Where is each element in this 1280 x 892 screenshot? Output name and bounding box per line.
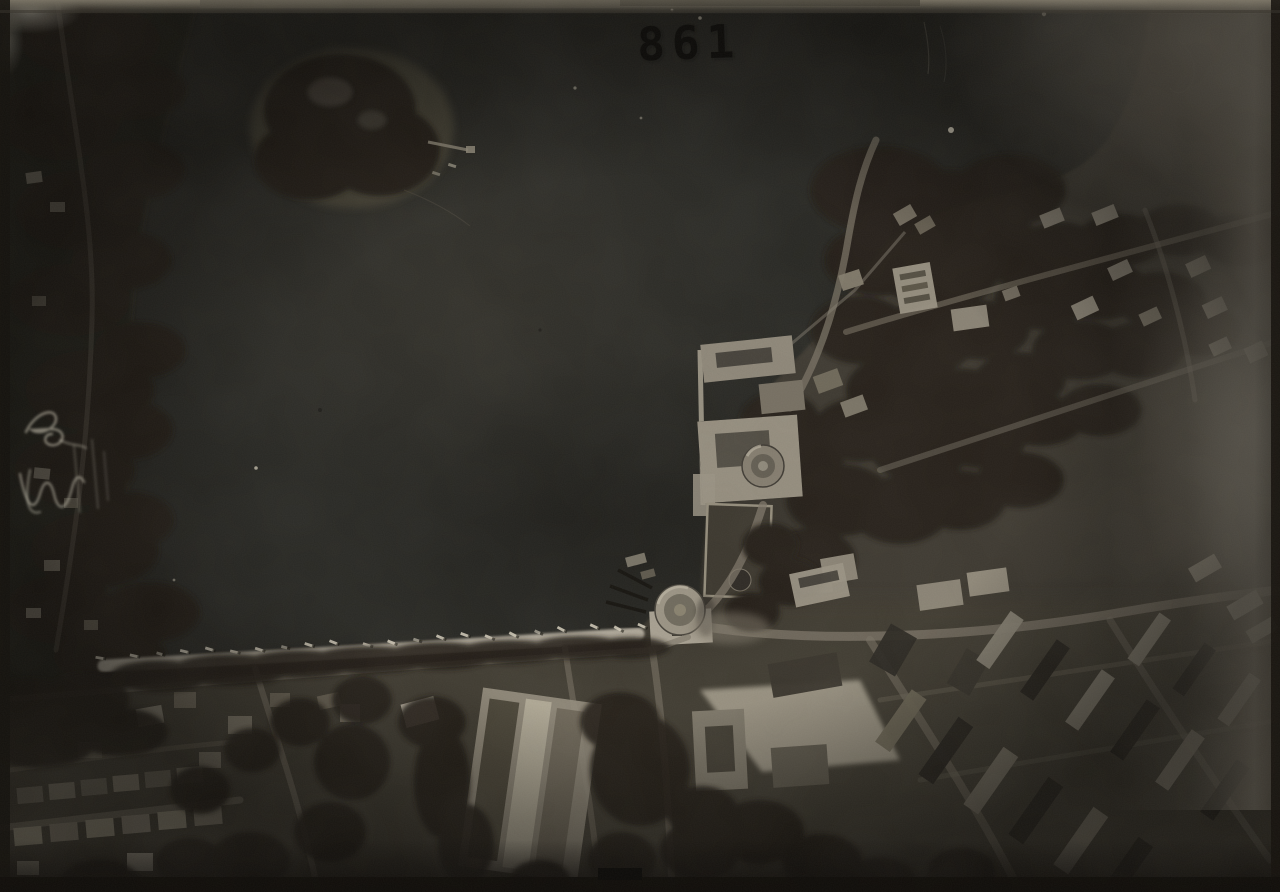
aerial-photo-canvas: 861 861 [0, 0, 1280, 892]
film-grain-dark [0, 0, 1280, 892]
aerial-photograph: 861 861 [0, 0, 1280, 892]
